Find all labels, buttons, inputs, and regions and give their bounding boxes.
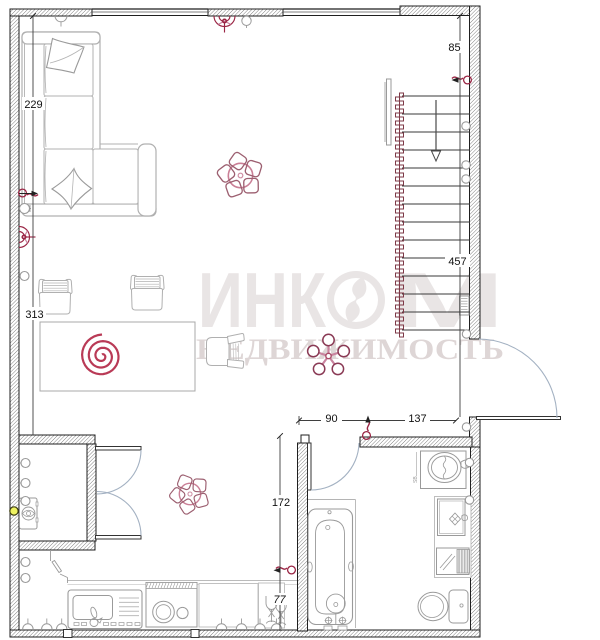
svg-text:ИНК: ИНК	[198, 256, 326, 344]
svg-text:М: М	[389, 256, 505, 344]
svg-text:77: 77	[273, 594, 286, 606]
svg-text:SB: SB	[413, 476, 419, 483]
svg-text:137: 137	[408, 413, 426, 425]
svg-text:457: 457	[448, 256, 466, 268]
svg-text:85: 85	[448, 42, 460, 54]
svg-text:172: 172	[272, 497, 290, 509]
svg-text:90: 90	[325, 413, 337, 425]
svg-text:229: 229	[24, 99, 42, 111]
svg-text:313: 313	[25, 309, 43, 321]
